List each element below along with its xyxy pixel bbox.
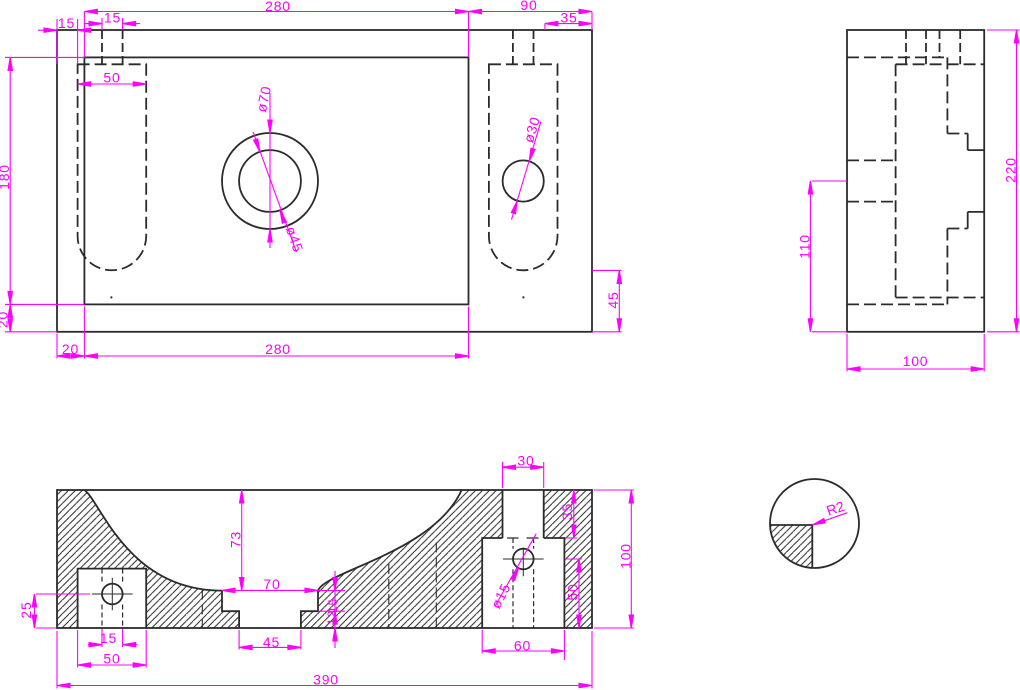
svg-text:280: 280 — [265, 341, 291, 357]
svg-text:280: 280 — [265, 0, 291, 14]
svg-text:30: 30 — [517, 453, 534, 469]
svg-text:35: 35 — [559, 503, 575, 520]
svg-text:20: 20 — [0, 311, 11, 328]
svg-text:45: 45 — [605, 291, 621, 308]
svg-text:60: 60 — [514, 638, 531, 654]
svg-text:25: 25 — [18, 601, 34, 618]
svg-text:50: 50 — [103, 651, 120, 667]
svg-text:35: 35 — [560, 10, 577, 26]
svg-text:110: 110 — [797, 234, 813, 259]
svg-text:220: 220 — [1003, 157, 1019, 183]
svg-text:50: 50 — [565, 583, 581, 600]
svg-text:73: 73 — [228, 531, 244, 548]
svg-text:15: 15 — [104, 10, 121, 26]
svg-text:70: 70 — [263, 576, 280, 592]
svg-text:20: 20 — [62, 341, 79, 357]
svg-text:180: 180 — [0, 164, 12, 190]
svg-text:390: 390 — [313, 672, 339, 688]
svg-text:100: 100 — [903, 353, 929, 369]
svg-text:15: 15 — [100, 630, 117, 646]
svg-text:100: 100 — [618, 543, 634, 569]
svg-text:45: 45 — [263, 634, 280, 650]
svg-text:50: 50 — [103, 70, 120, 86]
svg-text:15: 15 — [58, 15, 75, 31]
svg-text:12: 12 — [325, 610, 339, 625]
svg-text:90: 90 — [520, 0, 537, 13]
